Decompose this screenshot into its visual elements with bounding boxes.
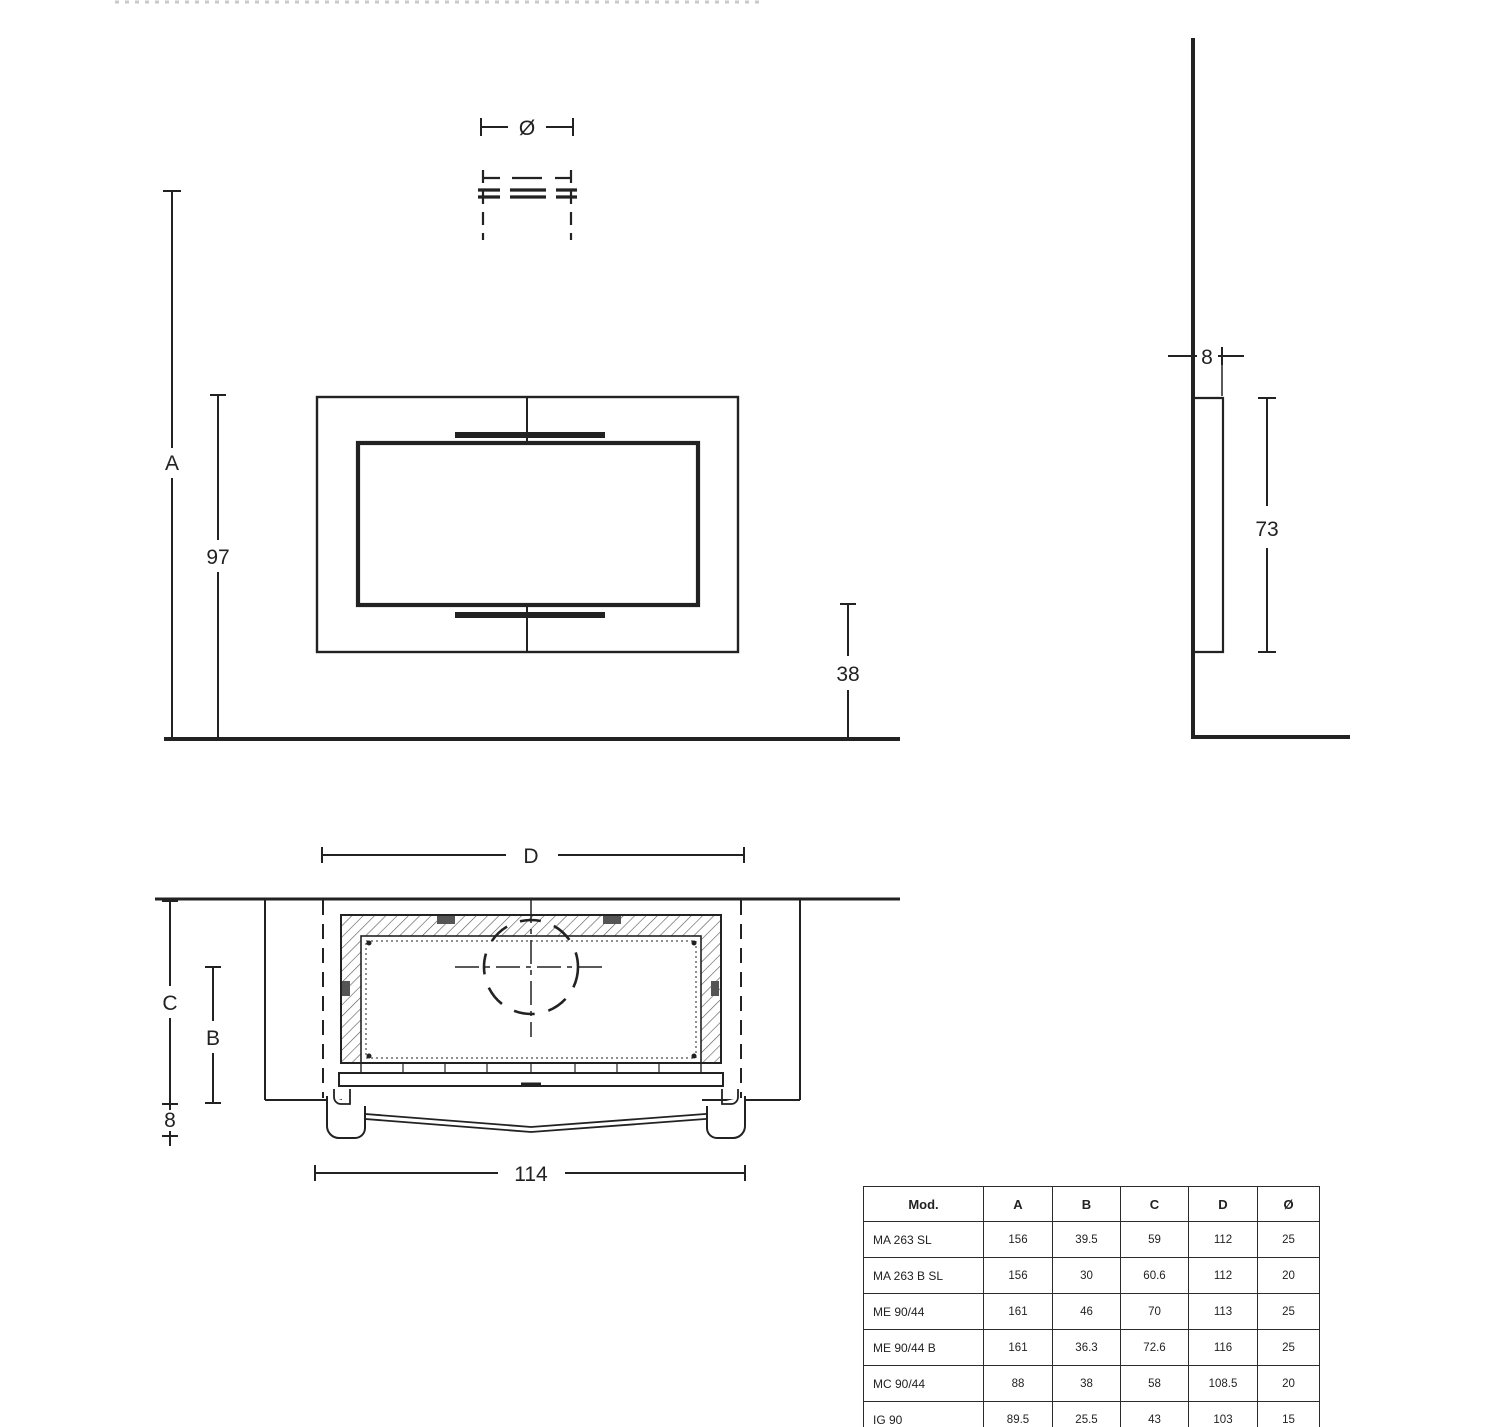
- value-diameter: 25: [1258, 1222, 1320, 1258]
- hearth-height-value: 38: [836, 663, 859, 686]
- niche-depth-dimension: C: [162, 901, 178, 1104]
- screw-top-right: [692, 941, 697, 946]
- flue-diameter-label: Ø: [519, 117, 535, 140]
- wall-ledge-value: 8: [1201, 346, 1213, 369]
- value-d: 112: [1189, 1258, 1258, 1294]
- table-row: MC 90/44 88 38 58 108.5 20: [864, 1366, 1320, 1402]
- value-c: 72.6: [1121, 1330, 1189, 1366]
- model-name: ME 90/44 B: [864, 1330, 984, 1366]
- value-a: 161: [984, 1294, 1053, 1330]
- flue-stub-dashed: [478, 170, 577, 240]
- niche-width-dimension: D: [322, 845, 744, 868]
- side-block-right: [711, 981, 719, 996]
- wall-ledge-dimension: 8: [1168, 346, 1244, 396]
- value-a: 88: [984, 1366, 1053, 1402]
- front-firebox-opening: [358, 443, 698, 605]
- model-name: MA 263 SL: [864, 1222, 984, 1258]
- plan-view: D C B 8: [155, 845, 900, 1186]
- value-d: 116: [1189, 1330, 1258, 1366]
- front-glass-outer-line: [340, 1112, 732, 1127]
- model-name: IG 90: [864, 1402, 984, 1427]
- value-b: 46: [1053, 1294, 1121, 1330]
- value-diameter: 20: [1258, 1366, 1320, 1402]
- table-row: ME 90/44 B 161 36.3 72.6 116 25: [864, 1330, 1320, 1366]
- front-view: Ø: [163, 117, 900, 739]
- technical-drawing-page: Ø: [0, 0, 1500, 1427]
- top-vent-block-left: [437, 916, 455, 924]
- screw-bottom-left: [367, 1054, 372, 1059]
- value-c: 58: [1121, 1366, 1189, 1402]
- body-depth-dimension: B: [205, 967, 221, 1103]
- header-c: C: [1121, 1187, 1189, 1222]
- hearth-height-dimension: 38: [836, 604, 859, 737]
- ledge-depth-value: 8: [164, 1109, 176, 1132]
- value-c: 60.6: [1121, 1258, 1189, 1294]
- header-mod: Mod.: [864, 1187, 984, 1222]
- header-b: B: [1053, 1187, 1121, 1222]
- niche-depth-label: C: [162, 992, 177, 1015]
- value-diameter: 15: [1258, 1402, 1320, 1427]
- top-vent-block-right: [603, 916, 621, 924]
- front-glass-inner-line: [340, 1117, 732, 1132]
- value-c: 43: [1121, 1402, 1189, 1427]
- value-diameter: 25: [1258, 1294, 1320, 1330]
- total-height-dimension: A: [163, 191, 181, 737]
- value-d: 108.5: [1189, 1366, 1258, 1402]
- table-row: MA 263 SL 156 39.5 59 112 25: [864, 1222, 1320, 1258]
- overall-width-value: 114: [514, 1163, 548, 1186]
- side-block-left: [342, 981, 350, 996]
- ledge-depth-dimension: 8: [162, 1104, 178, 1146]
- value-a: 156: [984, 1222, 1053, 1258]
- overall-width-dimension: 114: [315, 1163, 745, 1186]
- model-name: MC 90/44: [864, 1366, 984, 1402]
- table-row: ME 90/44 161 46 70 113 25: [864, 1294, 1320, 1330]
- value-c: 59: [1121, 1222, 1189, 1258]
- value-d: 103: [1189, 1402, 1258, 1427]
- table-row: MA 263 B SL 156 30 60.6 112 20: [864, 1258, 1320, 1294]
- side-view: 8 73: [1168, 38, 1350, 737]
- foot-left: [327, 1089, 365, 1138]
- panel-height-dimension: 73: [1255, 398, 1278, 652]
- model-name: MA 263 B SL: [864, 1258, 984, 1294]
- side-wall-and-floor: [1193, 38, 1350, 737]
- value-a: 156: [984, 1258, 1053, 1294]
- table-header-row: Mod. A B C D Ø: [864, 1187, 1320, 1222]
- value-d: 112: [1189, 1222, 1258, 1258]
- header-a: A: [984, 1187, 1053, 1222]
- total-height-label: A: [165, 452, 179, 475]
- frame-height-value: 97: [206, 546, 229, 569]
- value-b: 39.5: [1053, 1222, 1121, 1258]
- value-a: 161: [984, 1330, 1053, 1366]
- model-dimensions-table: Mod. A B C D Ø MA 263 SL 156 39.5 59 112…: [863, 1186, 1320, 1427]
- value-b: 38: [1053, 1366, 1121, 1402]
- model-name: ME 90/44: [864, 1294, 984, 1330]
- table-row: IG 90 89.5 25.5 43 103 15: [864, 1402, 1320, 1427]
- frame-height-dimension: 97: [206, 395, 229, 737]
- niche-width-label: D: [523, 845, 538, 868]
- grate-ticks: [403, 1063, 659, 1073]
- value-d: 113: [1189, 1294, 1258, 1330]
- value-c: 70: [1121, 1294, 1189, 1330]
- value-diameter: 25: [1258, 1330, 1320, 1366]
- value-b: 30: [1053, 1258, 1121, 1294]
- flue-diameter-dimension: Ø: [481, 117, 573, 140]
- body-depth-label: B: [206, 1027, 220, 1050]
- screw-bottom-right: [692, 1054, 697, 1059]
- header-diameter: Ø: [1258, 1187, 1320, 1222]
- screw-top-left: [367, 941, 372, 946]
- foot-right: [707, 1089, 745, 1138]
- value-a: 89.5: [984, 1402, 1053, 1427]
- value-b: 36.3: [1053, 1330, 1121, 1366]
- value-diameter: 20: [1258, 1258, 1320, 1294]
- panel-height-value: 73: [1255, 518, 1278, 541]
- value-b: 25.5: [1053, 1402, 1121, 1427]
- side-fireplace-profile: [1195, 398, 1223, 652]
- header-d: D: [1189, 1187, 1258, 1222]
